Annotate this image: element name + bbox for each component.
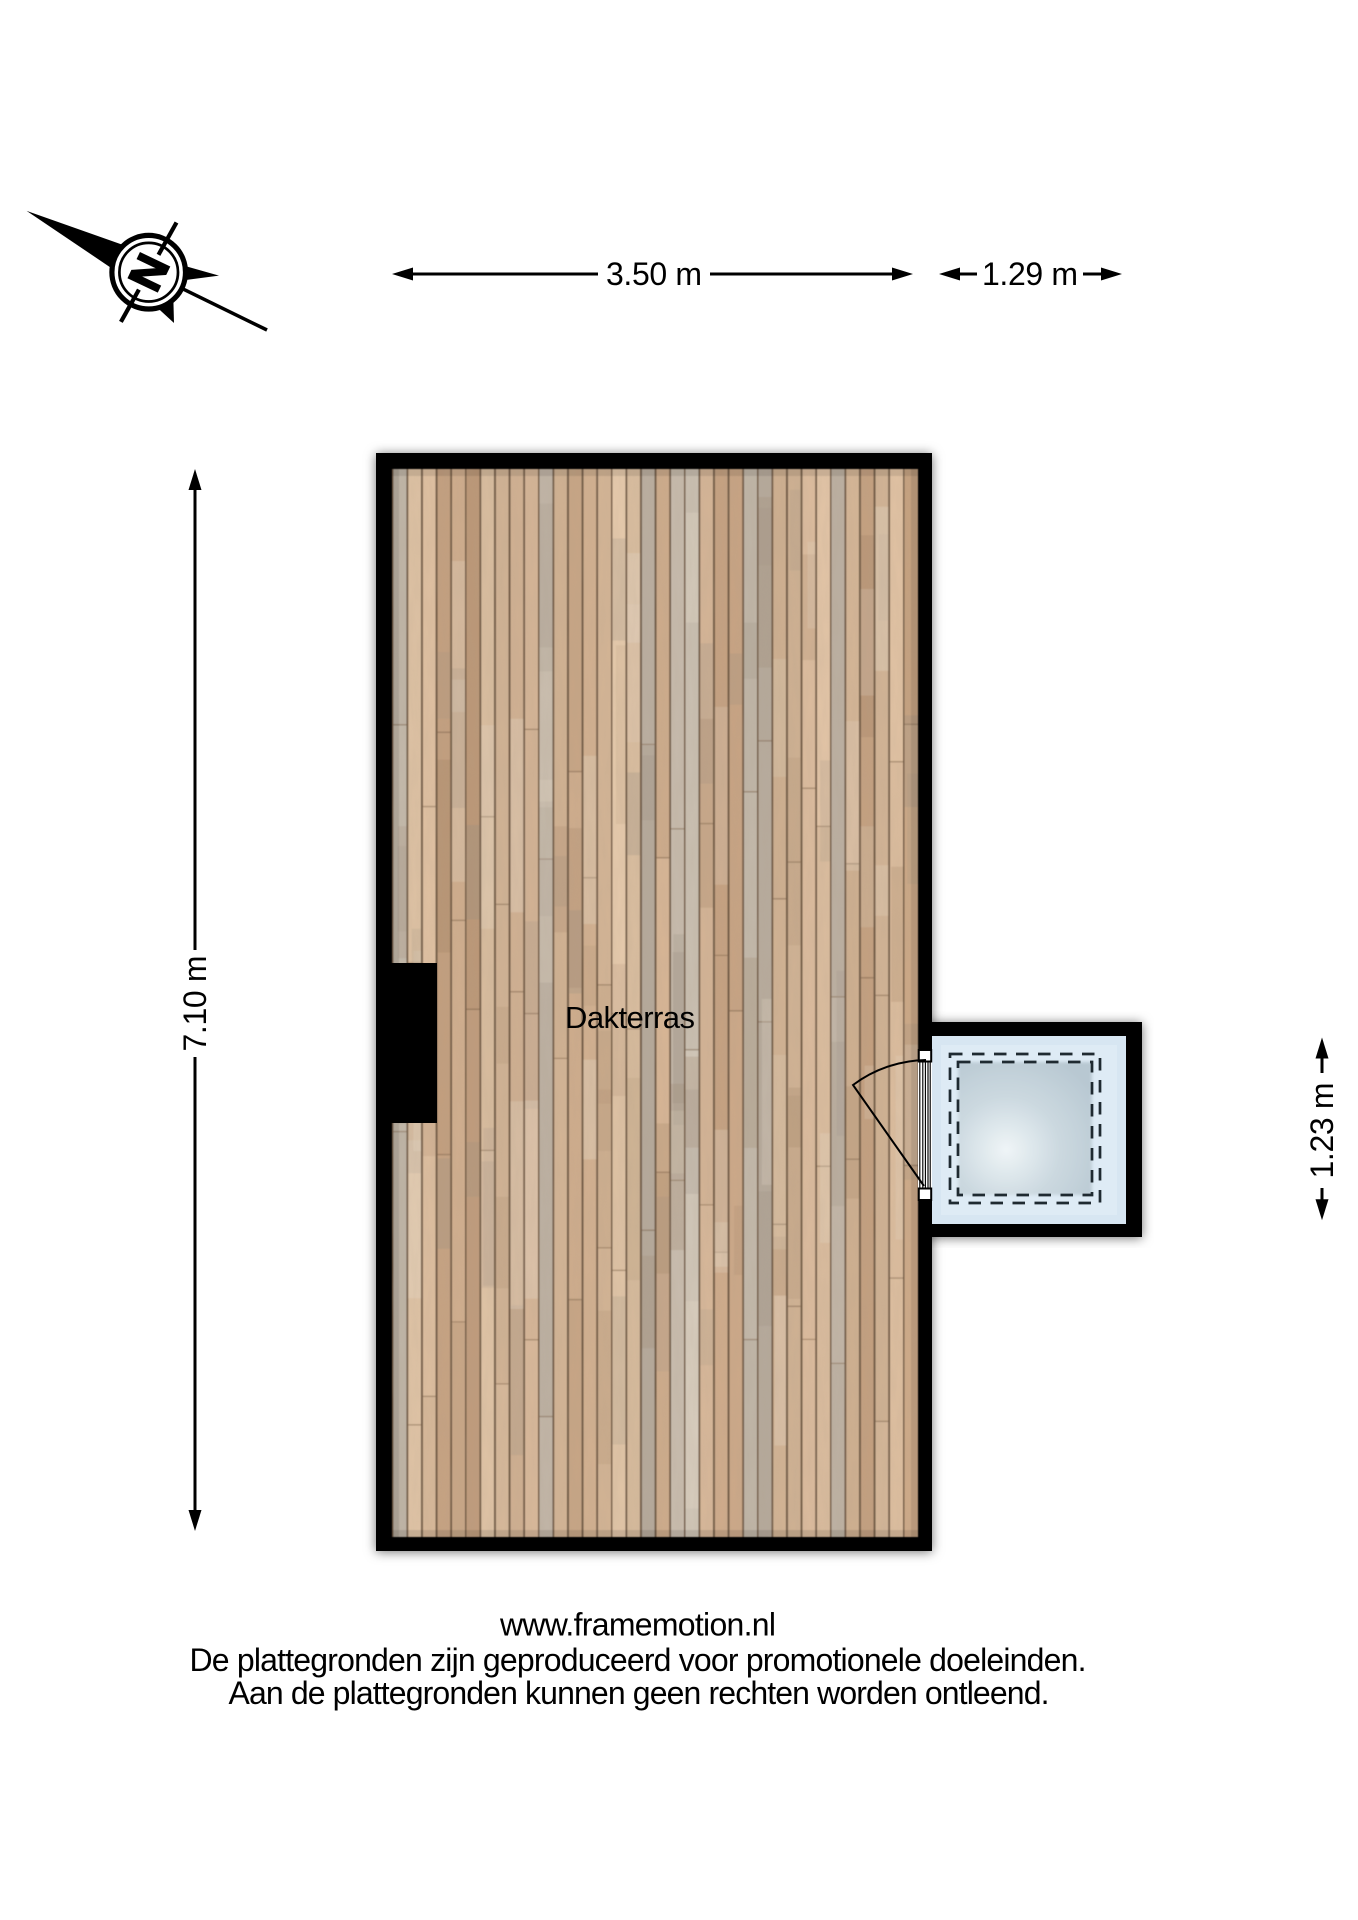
svg-text:7.10 m: 7.10 m: [177, 956, 213, 1052]
svg-text:1.23 m: 1.23 m: [1304, 1083, 1340, 1179]
svg-text:De plattegronden zijn geproduc: De plattegronden zijn geproduceerd voor …: [190, 1642, 1087, 1678]
svg-text:1.29 m: 1.29 m: [982, 256, 1078, 292]
svg-text:Dakterras: Dakterras: [565, 1000, 695, 1035]
svg-text:Aan de plattegronden kunnen ge: Aan de plattegronden kunnen geen rechten…: [229, 1675, 1050, 1711]
svg-text:www.framemotion.nl: www.framemotion.nl: [499, 1607, 776, 1643]
svg-text:3.50 m: 3.50 m: [606, 256, 702, 292]
